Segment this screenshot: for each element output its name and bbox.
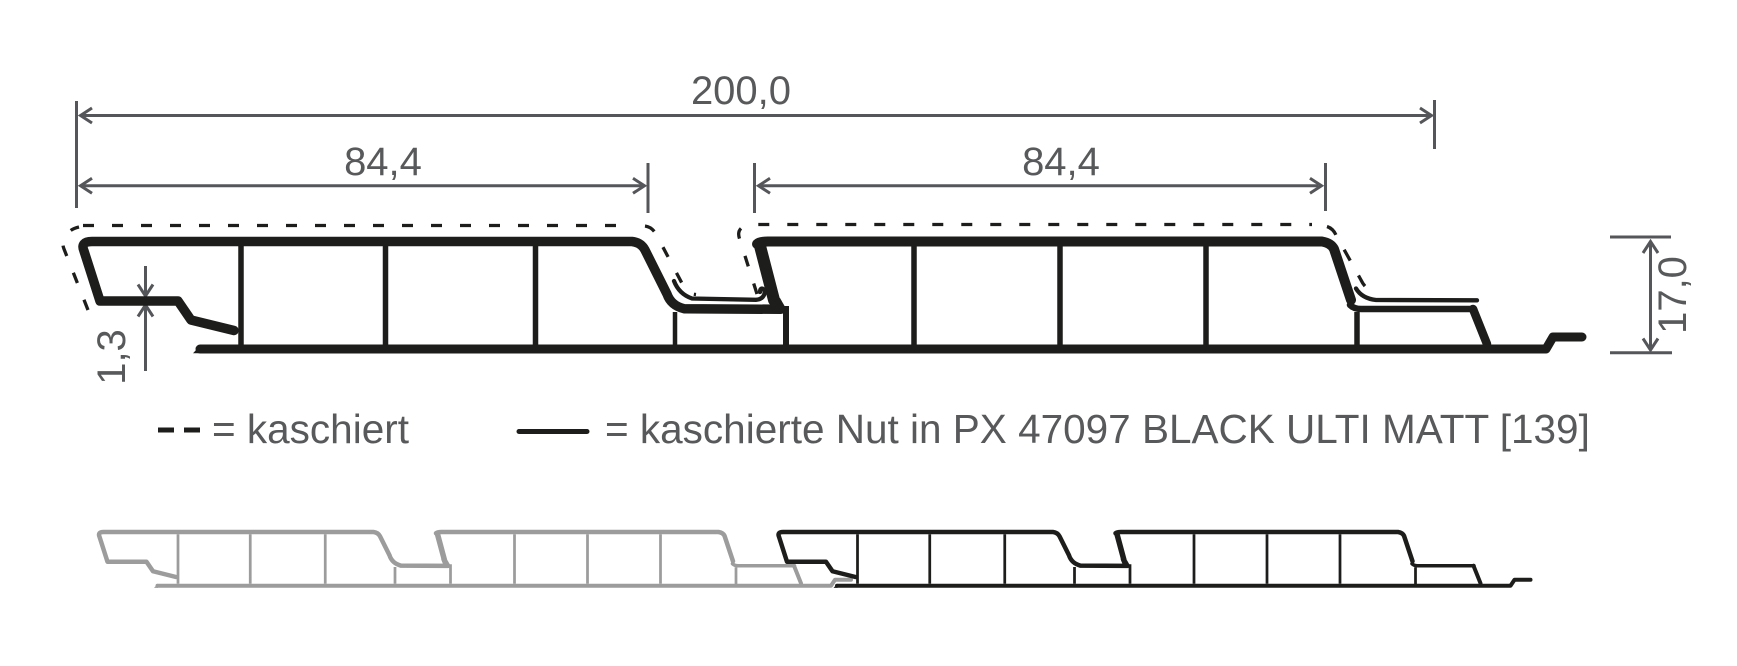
svg-text:1,3: 1,3 (90, 329, 134, 385)
svg-text:84,4: 84,4 (344, 140, 422, 184)
svg-text:84,4: 84,4 (1022, 140, 1100, 184)
svg-text:= kaschiert: = kaschiert (212, 406, 409, 452)
svg-text:= kaschierte Nut in PX 47097 B: = kaschierte Nut in PX 47097 BLACK ULTI … (605, 406, 1590, 452)
svg-text:17,0: 17,0 (1651, 256, 1695, 334)
svg-text:200,0: 200,0 (691, 69, 791, 113)
